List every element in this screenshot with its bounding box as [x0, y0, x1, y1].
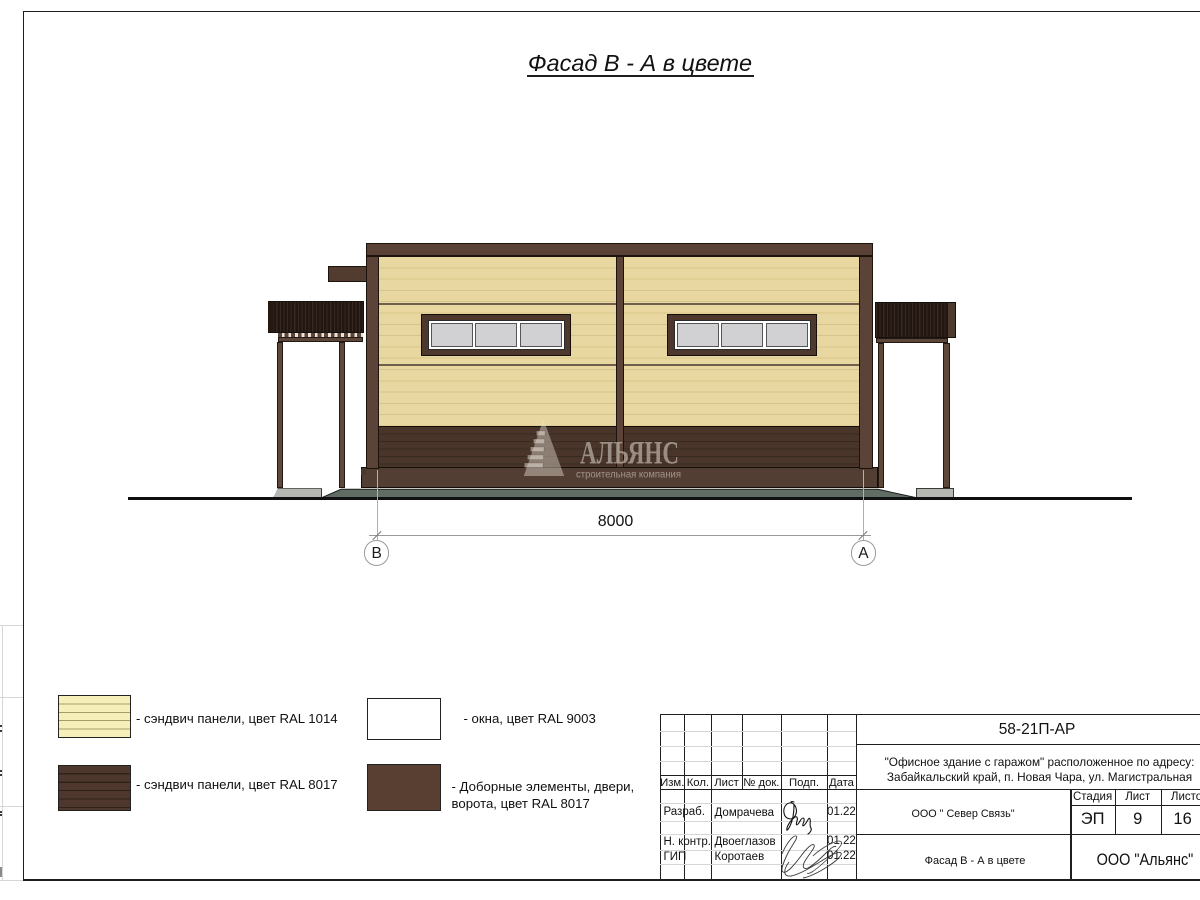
svg-text:АЛЬЯНС: АЛЬЯНС — [580, 436, 679, 472]
svg-text:строительная компания: строительная компания — [576, 469, 681, 481]
